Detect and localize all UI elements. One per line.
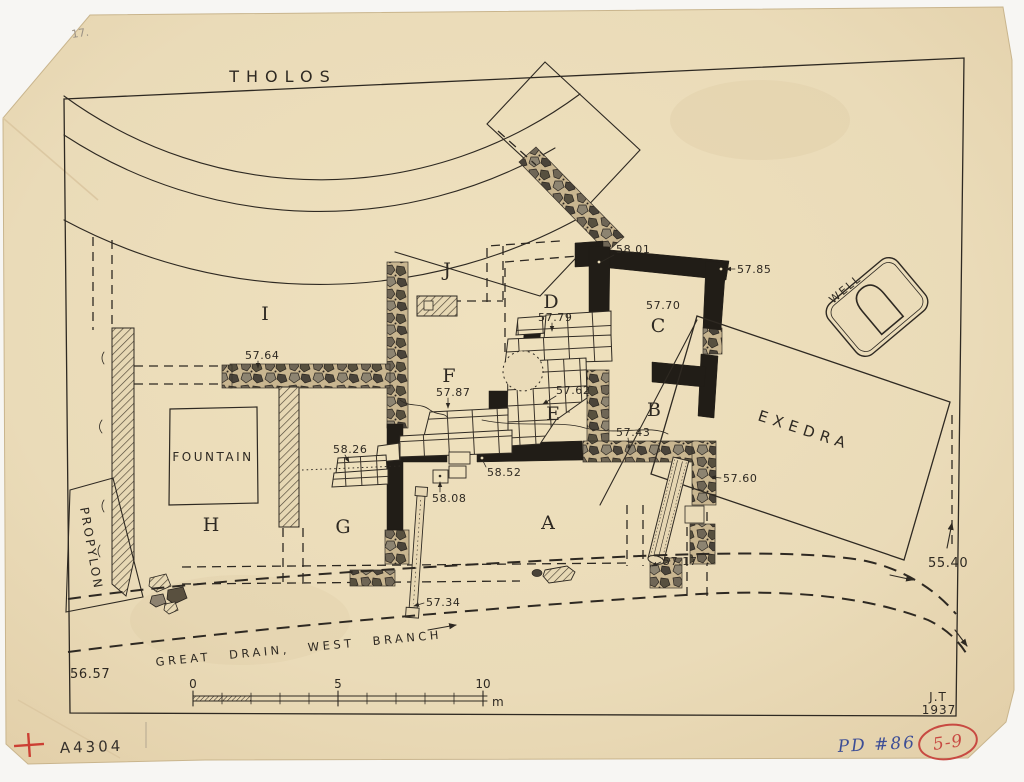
signature-year: 1937 (922, 703, 957, 717)
signature-initials: J.T (928, 690, 947, 704)
elevation-57-60: 57.60 (723, 472, 758, 485)
elevation-55-40: 55.40 (928, 556, 968, 571)
elevation-58-08: 58.08 (432, 492, 467, 505)
room-label-d: D (543, 291, 558, 313)
room-label-c: C (651, 315, 666, 337)
stamp-number: 5-9 (932, 731, 965, 755)
room-label-i: I (261, 303, 269, 325)
hatched-wall-west (112, 328, 134, 596)
room-label-f: F (442, 365, 455, 387)
room-label-h: H (203, 514, 220, 536)
elevation-57-85: 57.85 (737, 263, 772, 276)
elevation-58-26: 58.26 (333, 443, 368, 456)
hatched-pier-h-g (279, 387, 299, 527)
negative-number: A4304 (60, 737, 124, 757)
room-label-b: B (647, 399, 661, 421)
elevation-58-52: 58.52 (487, 466, 522, 479)
elevation-57-62: 57.62 (556, 384, 591, 397)
scale-tick-10: 10 (475, 677, 490, 691)
elevation-56-57: 56.57 (70, 667, 110, 682)
tholos-label: THOLOS (228, 67, 337, 86)
elevation-57-79: 57.79 (538, 311, 573, 324)
rubble-g-bottom (350, 570, 395, 586)
pd-number: PD #86 (836, 733, 916, 757)
hatched-block-j (417, 296, 457, 316)
elevation-57-87: 57.87 (436, 386, 471, 399)
rubble-g-wall-foot (385, 530, 409, 564)
scale-unit: m (492, 695, 504, 709)
room-label-a: A (540, 512, 555, 534)
scanned-plan-sheet: THOLOS (0, 0, 1024, 782)
elevation-57-70: 57.70 (646, 299, 681, 312)
rubble-wall-e-east (587, 370, 609, 444)
scale-tick-5: 5 (334, 677, 342, 691)
rubble-wall-5764 (230, 364, 390, 388)
room-label-e: E (546, 403, 560, 425)
elevation-57-43: 57.43 (616, 426, 651, 439)
room-label-j: J (441, 259, 451, 281)
column-base-circle (503, 351, 543, 391)
elevation-57-17: 57.17 (663, 555, 698, 568)
fountain-label: FOUNTAIN (172, 450, 253, 464)
elevation-58-01: 58.01 (616, 243, 651, 256)
scale-tick-0: 0 (189, 677, 197, 691)
elevation-57-34: 57.34 (426, 596, 461, 609)
rubble-wall-end (222, 365, 232, 388)
rubble-c-wall-gap (703, 328, 722, 354)
room-label-g: G (335, 516, 350, 538)
pencil-note: 17. (71, 26, 90, 41)
elevation-57-64: 57.64 (245, 349, 280, 362)
paper-stain (670, 80, 850, 160)
plan-drawing: THOLOS (0, 0, 1024, 782)
